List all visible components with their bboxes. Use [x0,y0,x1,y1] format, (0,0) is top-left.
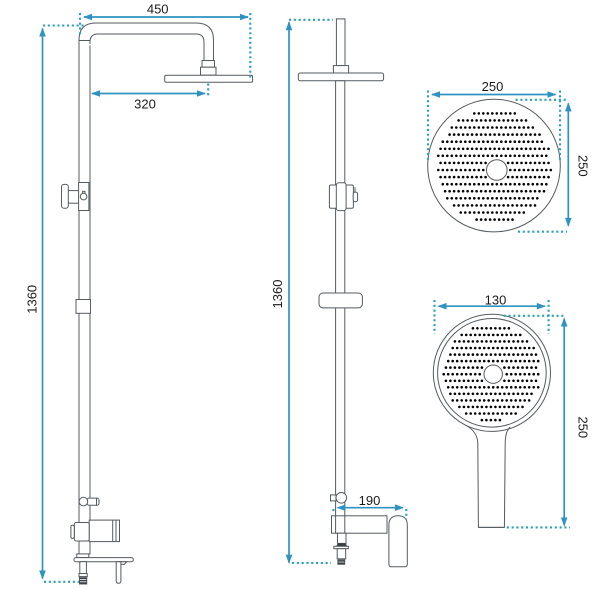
svg-text:320: 320 [134,96,156,111]
svg-text:450: 450 [147,2,169,17]
svg-text:250: 250 [576,416,591,438]
svg-text:1360: 1360 [270,280,285,309]
svg-text:190: 190 [359,493,381,508]
svg-text:130: 130 [485,292,507,307]
svg-text:1360: 1360 [24,285,39,314]
svg-text:250: 250 [576,155,591,177]
svg-text:250: 250 [482,79,504,94]
